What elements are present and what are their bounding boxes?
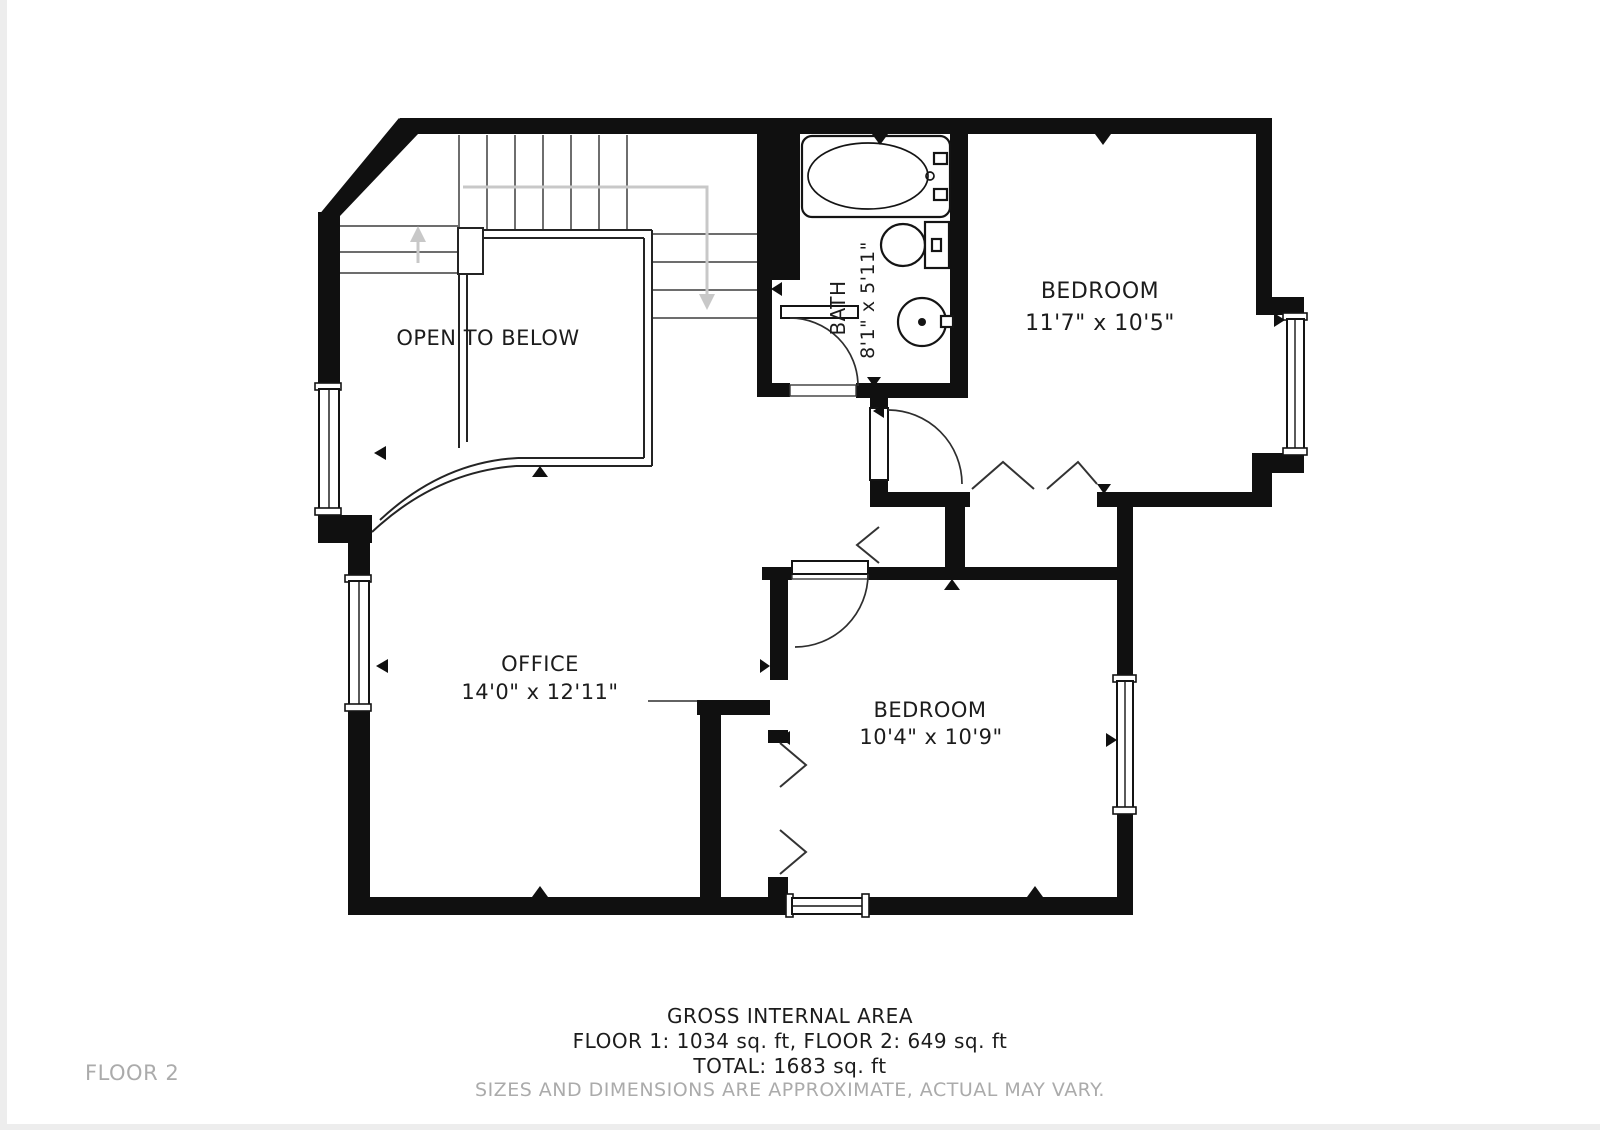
chevron-mark — [780, 743, 806, 787]
tick-down — [1095, 134, 1111, 145]
tick-right — [1106, 733, 1117, 747]
floorplan-canvas: OPEN TO BELOW BATH 8'1" x 5'11" BEDROOM … — [0, 0, 1600, 1130]
wall-segment — [770, 567, 788, 680]
window-bedroom-top-right — [1283, 313, 1307, 455]
wall-segment — [348, 897, 790, 915]
room-label-open-to-below: OPEN TO BELOW — [396, 326, 579, 350]
wall-segment — [700, 715, 721, 900]
stairs-winders — [340, 226, 458, 273]
room-label-bedroom-top: BEDROOM — [1041, 279, 1159, 304]
window-bedroom-bottom-sill — [786, 894, 869, 917]
stairs-upper-flight — [459, 135, 627, 229]
footer-disclaimer: SIZES AND DIMENSIONS ARE APPROXIMATE, AC… — [475, 1079, 1105, 1101]
wall-segment — [870, 385, 888, 408]
wall-segment — [757, 278, 772, 390]
wall-segment — [1256, 134, 1272, 299]
wall-tick-markers — [374, 134, 1285, 897]
tick-right — [760, 659, 770, 673]
wall-segment — [868, 897, 1133, 915]
wall-segment — [348, 540, 370, 578]
stair-direction-path — [410, 187, 715, 310]
window-office-left — [345, 575, 371, 711]
wall-segment — [945, 492, 965, 580]
footer: GROSS INTERNAL AREA FLOOR 1: 1034 sq. ft… — [85, 1004, 1105, 1101]
door-arc — [795, 574, 868, 647]
wall-segment — [768, 877, 788, 899]
room-label-bath: BATH — [826, 280, 850, 335]
stairs — [340, 135, 757, 318]
wall-segment — [757, 383, 790, 397]
down-path — [463, 187, 707, 296]
page-bottom-edge — [0, 1124, 1600, 1130]
tick-left — [374, 446, 386, 460]
room-dims-bedroom-top: 11'7" x 10'5" — [1025, 311, 1175, 336]
chevron-mark — [857, 527, 879, 563]
room-dims-office: 14'0" x 12'11" — [461, 680, 618, 704]
tick-left — [376, 659, 388, 673]
down-arrow-icon — [699, 294, 715, 310]
chevron-mark — [780, 830, 806, 874]
wall-segment — [1117, 813, 1133, 915]
wall-segment — [950, 134, 968, 398]
floor-label: FLOOR 2 — [85, 1061, 179, 1085]
tick-up — [1027, 886, 1043, 897]
bedroom-bottom-door — [792, 561, 868, 647]
wall-segment — [757, 118, 800, 280]
wall-segment — [1117, 495, 1133, 677]
chevron-mark — [1047, 462, 1097, 489]
room-dims-bedroom-bottom: 10'4" x 10'9" — [859, 725, 1002, 749]
window-open-area-left — [315, 383, 341, 515]
wall-segment — [318, 212, 340, 387]
wall-segment — [348, 710, 370, 915]
sink-icon — [898, 298, 953, 346]
wall-segment — [1252, 453, 1304, 473]
door-arc — [888, 410, 962, 484]
footer-total-area: TOTAL: 1683 sq. ft — [692, 1054, 886, 1078]
wall-segment — [868, 567, 1117, 580]
room-label-bedroom-bottom: BEDROOM — [873, 698, 986, 722]
footer-title: GROSS INTERNAL AREA — [667, 1004, 913, 1028]
floorplan-svg: OPEN TO BELOW BATH 8'1" x 5'11" BEDROOM … — [0, 0, 1600, 1130]
wall-segment — [697, 700, 770, 715]
bathtub-icon — [802, 136, 950, 217]
tick-left — [771, 282, 782, 296]
page-left-edge — [0, 0, 7, 1130]
toilet-icon — [881, 222, 949, 268]
room-label-office: OFFICE — [501, 652, 579, 676]
wall-segment — [400, 118, 1272, 134]
wall-segment — [870, 480, 888, 494]
tick-up — [944, 579, 960, 590]
up-arrow-icon — [410, 226, 426, 242]
tick-up — [532, 466, 548, 477]
bedroom-top-door — [870, 408, 962, 484]
windows — [315, 313, 1307, 917]
window-bedroom-bottom-right — [1113, 675, 1136, 814]
ceiling-break-chevrons — [780, 462, 1097, 874]
railing-newel — [458, 228, 483, 274]
footer-floor-areas: FLOOR 1: 1034 sq. ft, FLOOR 2: 649 sq. f… — [573, 1029, 1008, 1053]
stairs-lower-flight — [652, 234, 757, 318]
tick-up — [532, 886, 548, 897]
wall-segment — [318, 515, 372, 543]
chevron-mark — [972, 462, 1034, 489]
room-dims-bath: 8'1" x 5'11" — [857, 241, 879, 359]
